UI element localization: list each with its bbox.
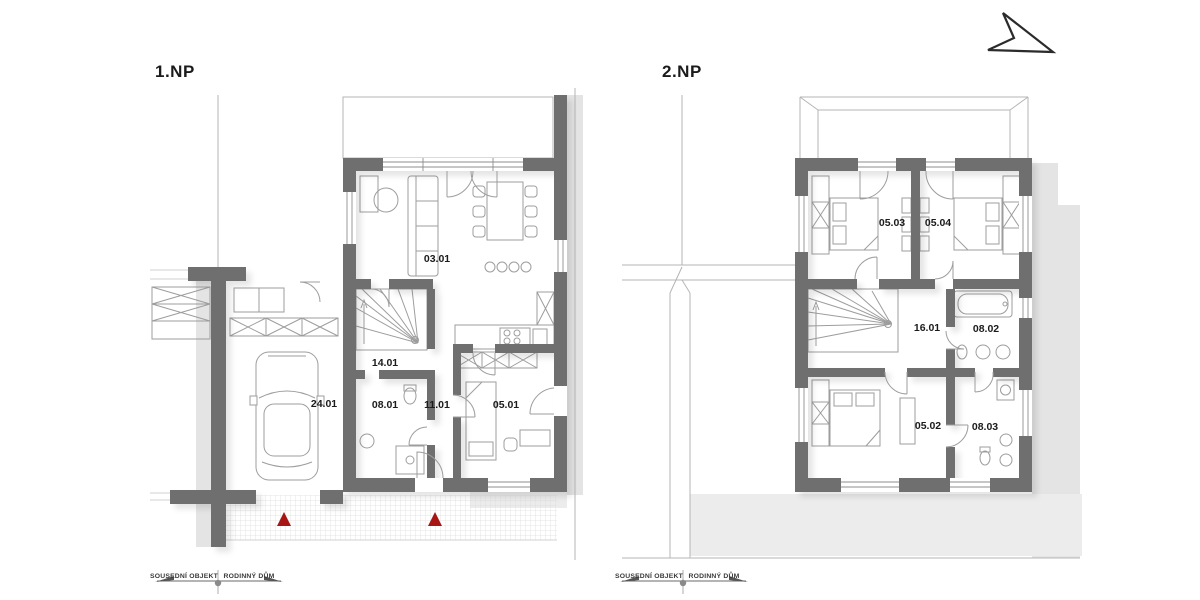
room-label-1601: 16.01 bbox=[914, 322, 940, 334]
room-label-0504: 05.04 bbox=[925, 217, 951, 229]
room-label-0501: 05.01 bbox=[493, 399, 519, 411]
toilet-icon bbox=[980, 451, 990, 465]
scale-annotation: SOUSEDNÍ OBJEKT RODINNÝ DŮM bbox=[150, 570, 283, 594]
terrace-outline bbox=[343, 97, 553, 158]
pillow-icon bbox=[856, 393, 874, 406]
bed-icon bbox=[830, 390, 880, 446]
toilet-icon bbox=[957, 345, 967, 359]
scale-left-label: SOUSEDNÍ OBJEKT bbox=[150, 571, 219, 580]
bed-icon bbox=[830, 198, 878, 250]
room-label-1401: 14.01 bbox=[372, 357, 398, 369]
bar-stool-icon bbox=[485, 262, 495, 272]
north-arrow-icon bbox=[988, 13, 1053, 52]
bar-stool-icon bbox=[521, 262, 531, 272]
dining-table-icon bbox=[487, 182, 523, 240]
sink-icon bbox=[533, 329, 547, 345]
bar-stool-icon bbox=[497, 262, 507, 272]
room-label-1101: 11.01 bbox=[424, 399, 450, 411]
bedroom-0502-furniture bbox=[812, 380, 915, 446]
bedroom-0504-furniture bbox=[954, 176, 1020, 254]
room-label-0803: 08.03 bbox=[972, 421, 998, 433]
shadow-left bbox=[196, 268, 211, 547]
pillow-icon bbox=[986, 203, 999, 221]
scale-annotation: SOUSEDNÍ OBJEKT RODINNÝ DŮM bbox=[615, 570, 748, 594]
pillow-icon bbox=[986, 226, 999, 244]
pillow-icon bbox=[833, 226, 846, 244]
shadow-bottom bbox=[690, 494, 1082, 556]
pillow-icon bbox=[833, 203, 846, 221]
pillow-icon bbox=[834, 393, 852, 406]
washing-machine-icon bbox=[997, 380, 1014, 400]
washbasin-icon bbox=[1000, 454, 1012, 466]
staircase-icon bbox=[356, 289, 427, 350]
floorplan-canvas: 1.NP bbox=[0, 0, 1200, 600]
washbasin-icon bbox=[976, 345, 990, 359]
washbasin-icon bbox=[1000, 434, 1012, 446]
room-label-0503: 05.03 bbox=[879, 217, 905, 229]
guest-room-furniture bbox=[466, 382, 550, 460]
plan-2np: 2.NP bbox=[615, 62, 1082, 594]
scale-right-label: RODINNÝ DŮM bbox=[224, 570, 275, 580]
toilet-icon bbox=[404, 388, 416, 404]
roof-outline bbox=[800, 97, 1028, 158]
desk-icon bbox=[900, 398, 915, 444]
chair-icon bbox=[504, 438, 517, 451]
washbasin-icon bbox=[996, 345, 1010, 359]
scale-left-label: SOUSEDNÍ OBJEKT bbox=[615, 571, 684, 580]
plan2-title: 2.NP bbox=[662, 62, 702, 81]
storage-rack-icon bbox=[152, 287, 338, 339]
car-top-view-icon bbox=[250, 352, 324, 480]
paving-grid bbox=[226, 495, 557, 540]
bar-stool-icon bbox=[509, 262, 519, 272]
room-label-0802: 08.02 bbox=[973, 323, 999, 335]
room-label-2401: 24.01 bbox=[311, 398, 337, 410]
pillow-icon bbox=[469, 442, 493, 456]
kitchen-counter-icon bbox=[455, 292, 554, 368]
floorplan-sheet: 1.NP bbox=[0, 0, 1200, 600]
plan-1np: 1.NP bbox=[150, 62, 583, 594]
shower-icon bbox=[396, 446, 424, 474]
room-label-0301: 03.01 bbox=[424, 253, 450, 265]
desk-icon bbox=[520, 430, 550, 446]
scale-right-label: RODINNÝ DŮM bbox=[689, 570, 740, 580]
bedroom-0503-furniture bbox=[812, 176, 878, 254]
plan1-title: 1.NP bbox=[155, 62, 195, 81]
room-label-0801: 08.01 bbox=[372, 399, 398, 411]
room-label-0502: 05.02 bbox=[915, 420, 941, 432]
washbasin-icon bbox=[360, 434, 374, 448]
bed-icon bbox=[954, 198, 1002, 250]
staircase-2np-icon bbox=[808, 289, 898, 352]
